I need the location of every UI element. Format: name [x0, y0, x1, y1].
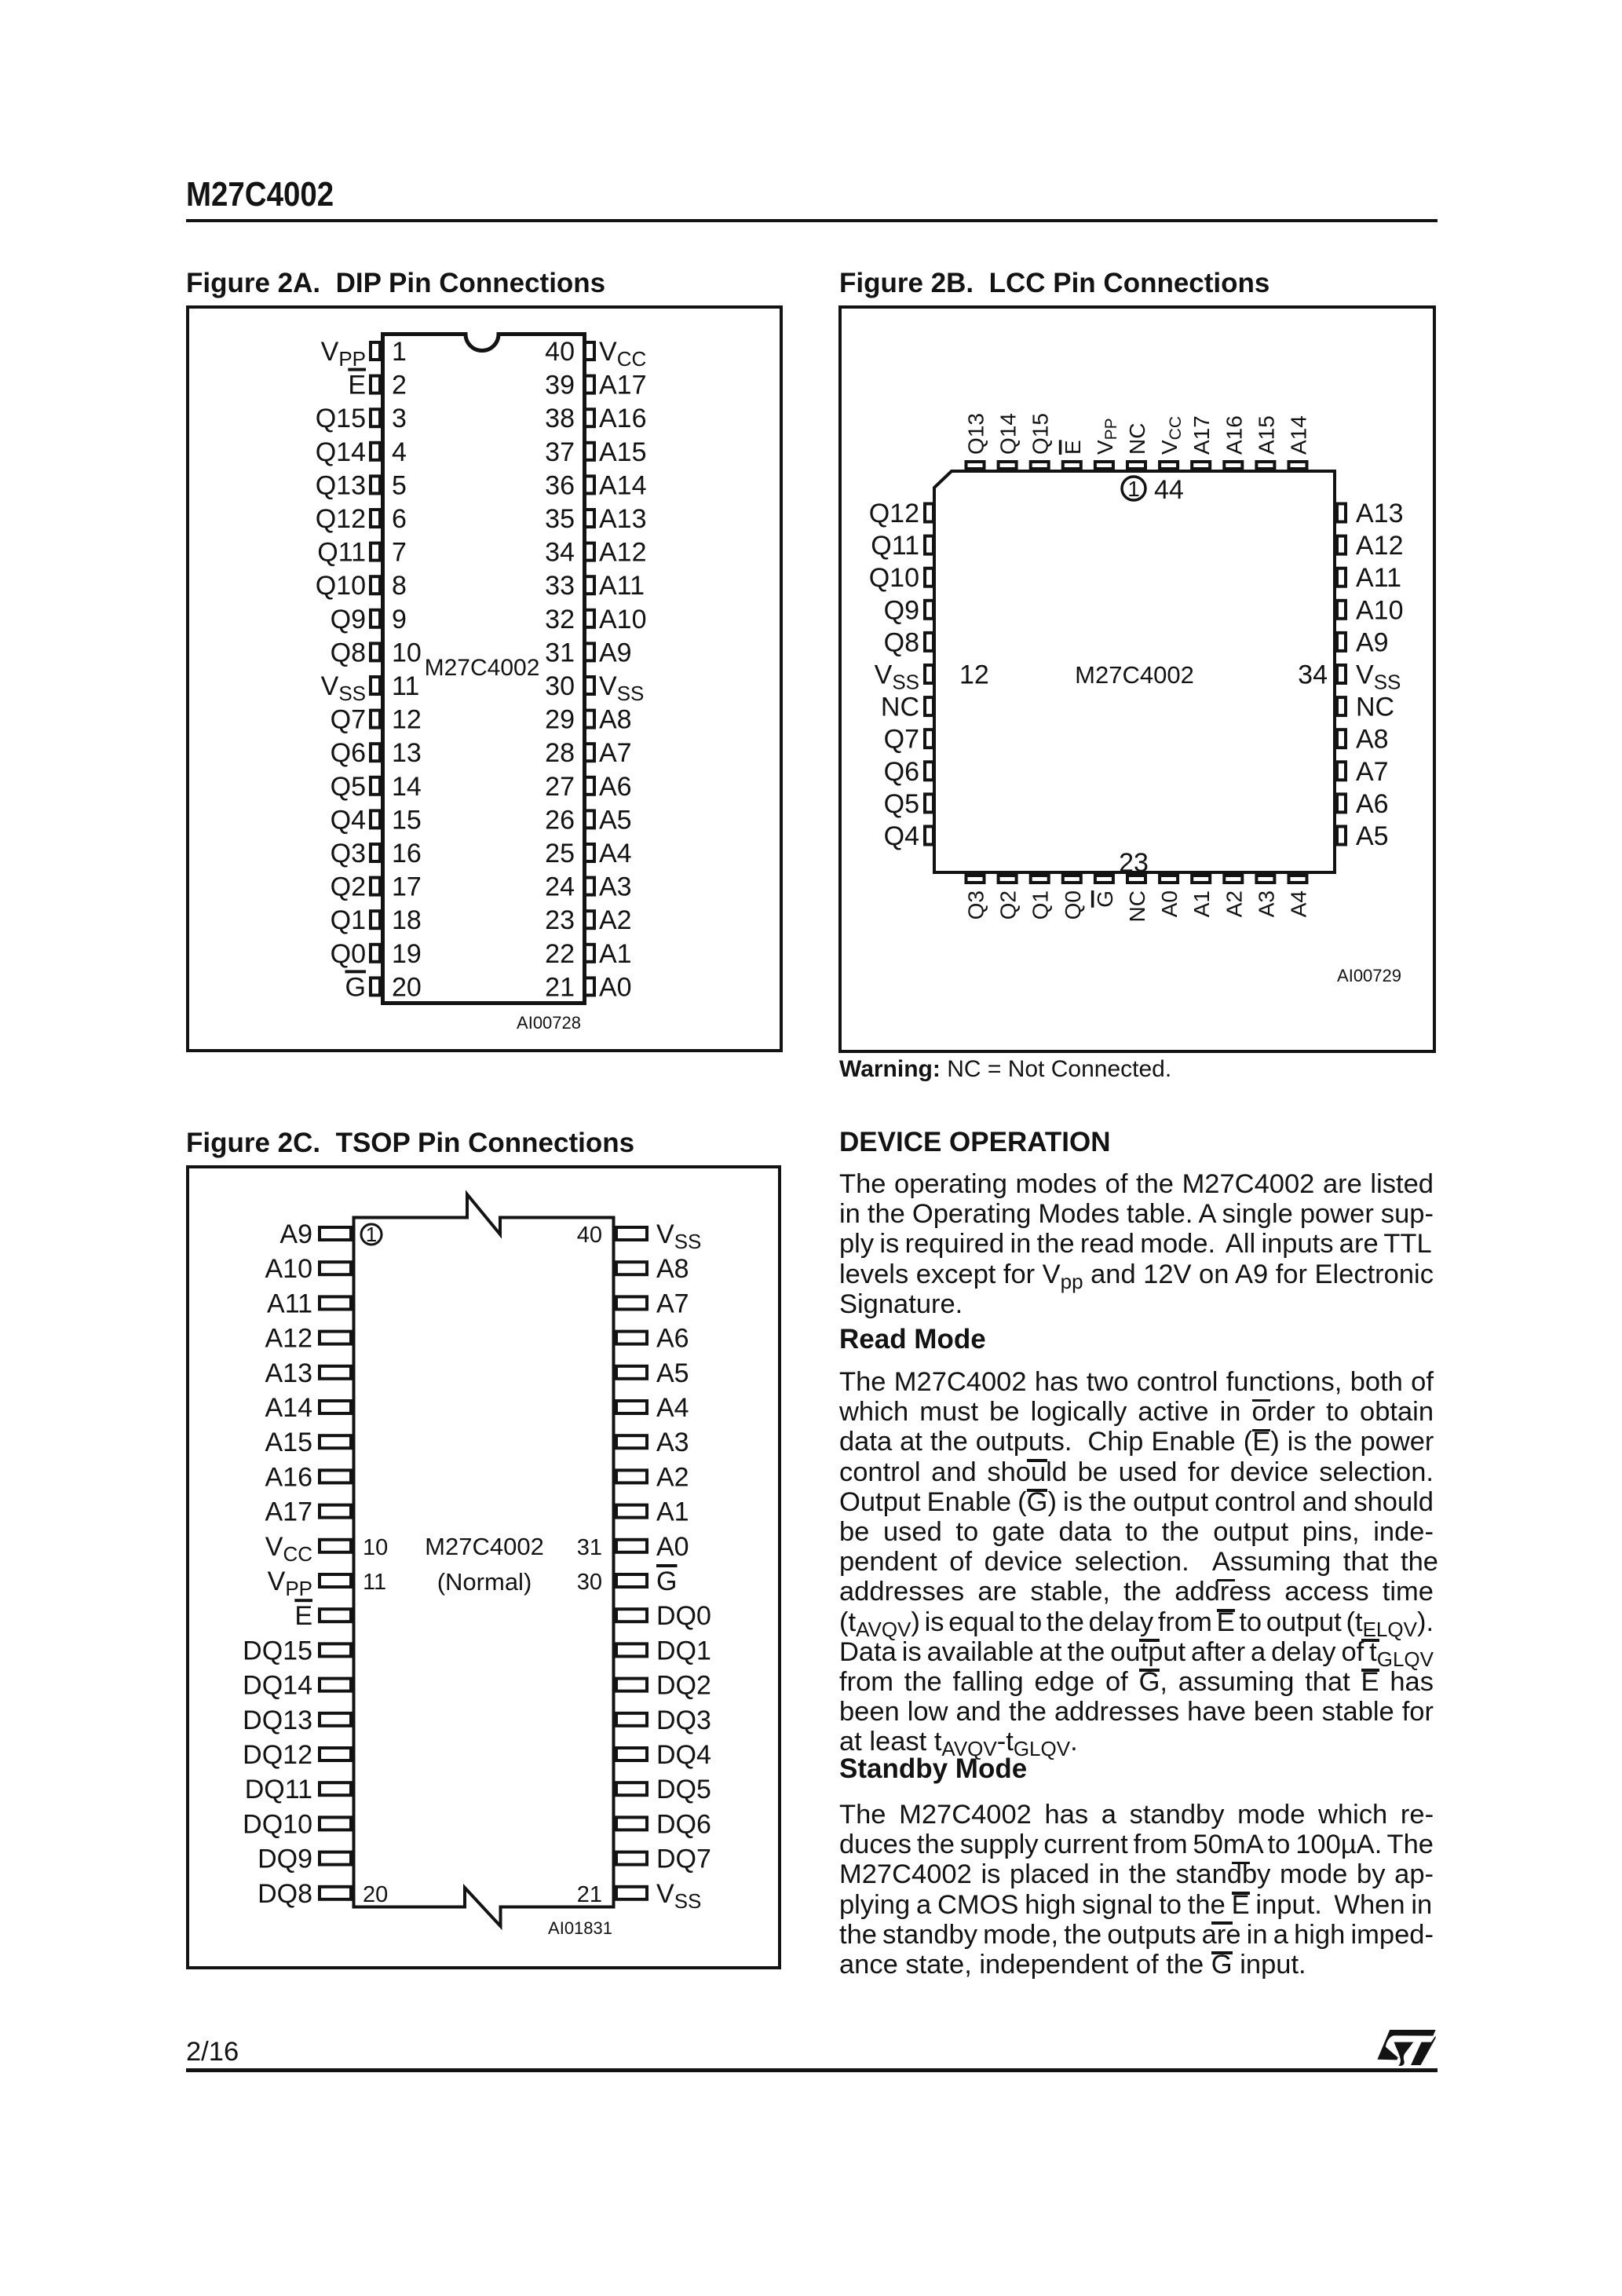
- svg-text:10: 10: [363, 1535, 388, 1560]
- svg-text:DQ5: DQ5: [656, 1775, 711, 1804]
- svg-text:14: 14: [392, 772, 422, 802]
- svg-text:DQ10: DQ10: [243, 1809, 312, 1839]
- svg-text:A6: A6: [656, 1324, 689, 1354]
- svg-text:23: 23: [545, 905, 575, 935]
- svg-text:Q4: Q4: [884, 821, 919, 851]
- svg-text:10: 10: [392, 638, 422, 667]
- svg-text:A5: A5: [1356, 821, 1389, 851]
- svg-text:A16: A16: [265, 1462, 313, 1492]
- svg-text:A2: A2: [656, 1462, 689, 1492]
- svg-text:A4: A4: [599, 839, 632, 868]
- svg-text:VSS: VSS: [321, 671, 366, 705]
- svg-text:20: 20: [392, 972, 422, 1002]
- svg-text:VCC: VCC: [265, 1532, 312, 1566]
- svg-text:E: E: [348, 371, 366, 400]
- svg-text:Q14: Q14: [996, 413, 1021, 455]
- svg-text:34: 34: [1298, 660, 1328, 690]
- svg-text:34: 34: [545, 538, 575, 568]
- svg-text:A4: A4: [656, 1393, 689, 1423]
- svg-text:A3: A3: [656, 1428, 689, 1457]
- svg-text:A12: A12: [1356, 531, 1404, 561]
- svg-text:G: G: [656, 1567, 677, 1596]
- svg-text:Q15: Q15: [316, 404, 366, 433]
- svg-text:A8: A8: [599, 705, 632, 735]
- svg-text:21: 21: [545, 972, 575, 1002]
- svg-text:35: 35: [545, 504, 575, 534]
- svg-text:DQ13: DQ13: [243, 1706, 312, 1735]
- svg-text:NC: NC: [1125, 890, 1149, 922]
- svg-text:A11: A11: [1356, 563, 1401, 593]
- svg-text:Q14: Q14: [316, 437, 366, 467]
- svg-text:A10: A10: [265, 1254, 313, 1284]
- svg-text:37: 37: [545, 437, 575, 467]
- svg-text:A1: A1: [656, 1497, 689, 1527]
- svg-text:DQ9: DQ9: [258, 1844, 312, 1874]
- svg-text:16: 16: [392, 839, 422, 868]
- svg-text:DQ6: DQ6: [656, 1809, 711, 1839]
- svg-text:Q13: Q13: [964, 413, 988, 455]
- svg-text:A17: A17: [1189, 415, 1214, 455]
- svg-text:DQ11: DQ11: [245, 1775, 312, 1804]
- svg-text:6: 6: [392, 504, 407, 534]
- svg-text:M27C4002: M27C4002: [1075, 661, 1194, 689]
- svg-text:Q9: Q9: [331, 605, 366, 634]
- svg-text:25: 25: [545, 839, 575, 868]
- svg-text:A7: A7: [1356, 757, 1389, 787]
- svg-text:Q0: Q0: [1061, 890, 1085, 919]
- svg-text:VSS: VSS: [599, 671, 644, 705]
- svg-text:A15: A15: [1254, 415, 1278, 455]
- svg-text:VSS: VSS: [875, 660, 919, 694]
- svg-text:DQ8: DQ8: [258, 1879, 312, 1909]
- svg-text:DQ3: DQ3: [656, 1706, 711, 1735]
- svg-text:A1: A1: [1189, 890, 1214, 917]
- svg-text:AI01831: AI01831: [548, 1918, 612, 1938]
- svg-text:19: 19: [392, 939, 422, 969]
- svg-text:A17: A17: [599, 371, 647, 400]
- svg-text:Q7: Q7: [331, 705, 366, 735]
- svg-text:VSS: VSS: [1356, 660, 1401, 694]
- svg-text:2: 2: [392, 371, 407, 400]
- svg-text:DQ14: DQ14: [243, 1671, 312, 1701]
- svg-text:A14: A14: [599, 470, 647, 500]
- svg-text:A9: A9: [279, 1219, 312, 1249]
- svg-text:31: 31: [577, 1535, 602, 1560]
- svg-text:M27C4002: M27C4002: [425, 655, 540, 681]
- svg-text:A16: A16: [1222, 415, 1246, 455]
- svg-text:A13: A13: [599, 504, 647, 534]
- svg-text:VPP: VPP: [268, 1567, 312, 1600]
- svg-text:A9: A9: [1356, 627, 1389, 657]
- svg-text:Q2: Q2: [996, 890, 1021, 919]
- svg-text:A4: A4: [1287, 890, 1311, 917]
- svg-text:VSS: VSS: [656, 1879, 701, 1913]
- svg-text:40: 40: [545, 337, 575, 367]
- svg-text:Q6: Q6: [331, 738, 366, 768]
- svg-text:Q13: Q13: [316, 470, 366, 500]
- svg-text:28: 28: [545, 738, 575, 768]
- svg-text:DQ7: DQ7: [656, 1844, 711, 1874]
- svg-text:Q2: Q2: [331, 872, 366, 902]
- svg-text:A7: A7: [599, 738, 632, 768]
- svg-text:A13: A13: [1356, 499, 1404, 528]
- svg-text:Q5: Q5: [884, 789, 919, 819]
- svg-text:29: 29: [545, 705, 575, 735]
- svg-text:12: 12: [959, 660, 989, 690]
- svg-text:A9: A9: [599, 638, 632, 667]
- svg-text:30: 30: [577, 1570, 602, 1595]
- svg-text:18: 18: [392, 905, 422, 935]
- svg-text:VPP: VPP: [1093, 418, 1120, 455]
- svg-text:Q4: Q4: [331, 805, 366, 835]
- svg-text:VSS: VSS: [656, 1219, 701, 1253]
- svg-text:33: 33: [545, 571, 575, 601]
- svg-text:1: 1: [392, 337, 407, 367]
- svg-text:23: 23: [1119, 848, 1149, 878]
- svg-text:A5: A5: [656, 1358, 689, 1388]
- svg-text:DQ2: DQ2: [656, 1671, 711, 1701]
- svg-text:7: 7: [392, 538, 407, 568]
- svg-text:E: E: [1061, 440, 1085, 455]
- svg-text:A10: A10: [1356, 595, 1404, 625]
- svg-text:Q5: Q5: [331, 772, 366, 802]
- svg-text:DQ1: DQ1: [656, 1636, 711, 1665]
- svg-text:A5: A5: [599, 805, 632, 835]
- svg-text:27: 27: [545, 772, 575, 802]
- svg-text:Q12: Q12: [316, 504, 366, 534]
- svg-text:24: 24: [545, 872, 575, 902]
- svg-text:A1: A1: [599, 939, 632, 969]
- svg-text:Q11: Q11: [317, 538, 366, 568]
- svg-text:A7: A7: [656, 1289, 689, 1318]
- svg-text:A6: A6: [1356, 789, 1389, 819]
- svg-text:21: 21: [577, 1882, 602, 1907]
- svg-text:Q3: Q3: [964, 890, 988, 919]
- svg-text:E: E: [294, 1601, 312, 1631]
- svg-text:AI00728: AI00728: [517, 1013, 581, 1033]
- svg-text:Q1: Q1: [331, 905, 366, 935]
- svg-text:G: G: [345, 972, 366, 1002]
- svg-text:VCC: VCC: [599, 337, 646, 371]
- svg-text:A14: A14: [265, 1393, 313, 1423]
- svg-text:A11: A11: [599, 571, 645, 601]
- svg-text:A0: A0: [599, 972, 632, 1002]
- svg-text:Q8: Q8: [884, 627, 919, 657]
- svg-text:A13: A13: [265, 1358, 313, 1388]
- svg-text:30: 30: [545, 671, 575, 701]
- svg-text:15: 15: [392, 805, 422, 835]
- svg-text:A0: A0: [1157, 890, 1182, 917]
- svg-text:A12: A12: [599, 538, 647, 568]
- svg-text:Q1: Q1: [1028, 890, 1053, 919]
- svg-text:36: 36: [545, 470, 575, 500]
- svg-text:VPP: VPP: [321, 337, 366, 371]
- svg-text:5: 5: [392, 470, 407, 500]
- svg-text:A10: A10: [599, 605, 647, 634]
- svg-text:20: 20: [363, 1882, 388, 1907]
- svg-text:NC: NC: [1356, 693, 1394, 722]
- svg-text:(Normal): (Normal): [437, 1568, 532, 1596]
- svg-text:Q10: Q10: [316, 571, 366, 601]
- svg-text:40: 40: [577, 1223, 602, 1248]
- svg-text:1: 1: [366, 1223, 377, 1246]
- svg-text:A2: A2: [1222, 890, 1246, 917]
- svg-text:4: 4: [392, 437, 407, 467]
- svg-text:Q9: Q9: [884, 595, 919, 625]
- svg-text:A3: A3: [599, 872, 632, 902]
- svg-text:Q15: Q15: [1028, 413, 1053, 455]
- svg-text:12: 12: [392, 705, 422, 735]
- svg-text:13: 13: [392, 738, 422, 768]
- svg-text:A15: A15: [599, 437, 647, 467]
- svg-text:G: G: [1093, 890, 1117, 908]
- svg-text:DQ0: DQ0: [656, 1601, 711, 1631]
- svg-text:A16: A16: [599, 404, 647, 433]
- svg-text:NC: NC: [881, 693, 919, 722]
- svg-text:Q6: Q6: [884, 757, 919, 787]
- svg-text:1: 1: [1127, 477, 1140, 501]
- svg-text:38: 38: [545, 404, 575, 433]
- svg-text:32: 32: [545, 605, 575, 634]
- svg-text:44: 44: [1154, 475, 1184, 505]
- svg-text:3: 3: [392, 404, 407, 433]
- svg-text:Q3: Q3: [331, 839, 366, 868]
- svg-text:Q0: Q0: [331, 939, 366, 969]
- svg-text:17: 17: [392, 872, 422, 902]
- svg-text:8: 8: [392, 571, 407, 601]
- svg-text:11: 11: [392, 671, 419, 701]
- svg-text:A6: A6: [599, 772, 632, 802]
- svg-text:A11: A11: [267, 1289, 312, 1318]
- svg-text:Q8: Q8: [331, 638, 366, 667]
- svg-text:Q7: Q7: [884, 725, 919, 755]
- svg-text:26: 26: [545, 805, 575, 835]
- svg-text:A3: A3: [1254, 890, 1278, 917]
- svg-text:DQ15: DQ15: [243, 1636, 312, 1665]
- svg-text:A12: A12: [265, 1324, 313, 1354]
- svg-text:Q10: Q10: [869, 563, 919, 593]
- svg-text:22: 22: [545, 939, 575, 969]
- svg-text:A15: A15: [265, 1428, 313, 1457]
- svg-text:M27C4002: M27C4002: [425, 1533, 544, 1560]
- svg-text:A8: A8: [656, 1254, 689, 1284]
- svg-text:NC: NC: [1125, 423, 1149, 455]
- svg-text:Q11: Q11: [871, 531, 919, 561]
- svg-text:A8: A8: [1356, 725, 1389, 755]
- svg-text:DQ4: DQ4: [656, 1740, 711, 1770]
- svg-text:AI00729: AI00729: [1337, 966, 1401, 985]
- svg-text:A0: A0: [656, 1532, 689, 1562]
- svg-text:Q12: Q12: [869, 499, 919, 528]
- svg-text:31: 31: [545, 638, 575, 667]
- svg-text:DQ12: DQ12: [243, 1740, 312, 1770]
- svg-text:A2: A2: [599, 905, 632, 935]
- svg-text:A14: A14: [1287, 415, 1311, 455]
- svg-text:A17: A17: [265, 1497, 313, 1527]
- svg-text:9: 9: [392, 605, 407, 634]
- svg-text:39: 39: [545, 371, 575, 400]
- svg-text:11: 11: [363, 1570, 386, 1595]
- svg-text:VCC: VCC: [1157, 416, 1185, 455]
